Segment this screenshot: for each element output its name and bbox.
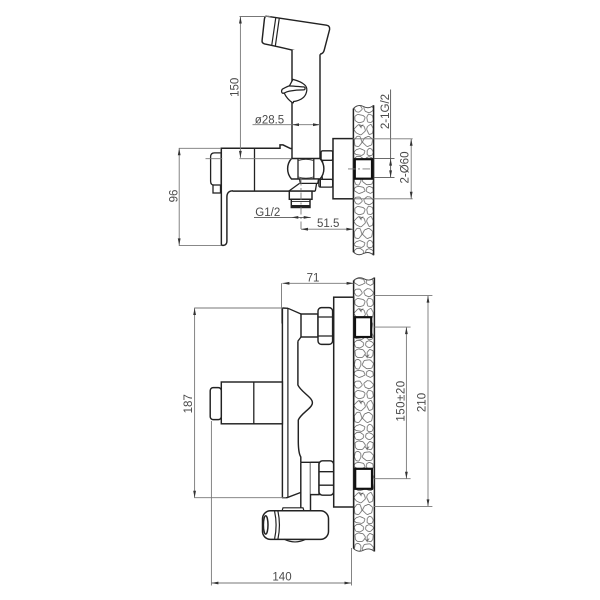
svg-text:150: 150 [230, 78, 242, 97]
svg-text:71: 71 [307, 272, 320, 284]
svg-text:210: 210 [417, 393, 429, 412]
svg-text:2-Ø60: 2-Ø60 [400, 152, 412, 184]
svg-text:96: 96 [169, 190, 181, 203]
svg-text:ø28.5: ø28.5 [255, 114, 284, 126]
svg-text:2-1G/2: 2-1G/2 [380, 94, 392, 129]
svg-text:51.5: 51.5 [317, 218, 339, 230]
svg-text:140: 140 [272, 571, 291, 583]
svg-text:150±20: 150±20 [395, 380, 407, 421]
svg-text:187: 187 [183, 394, 195, 413]
